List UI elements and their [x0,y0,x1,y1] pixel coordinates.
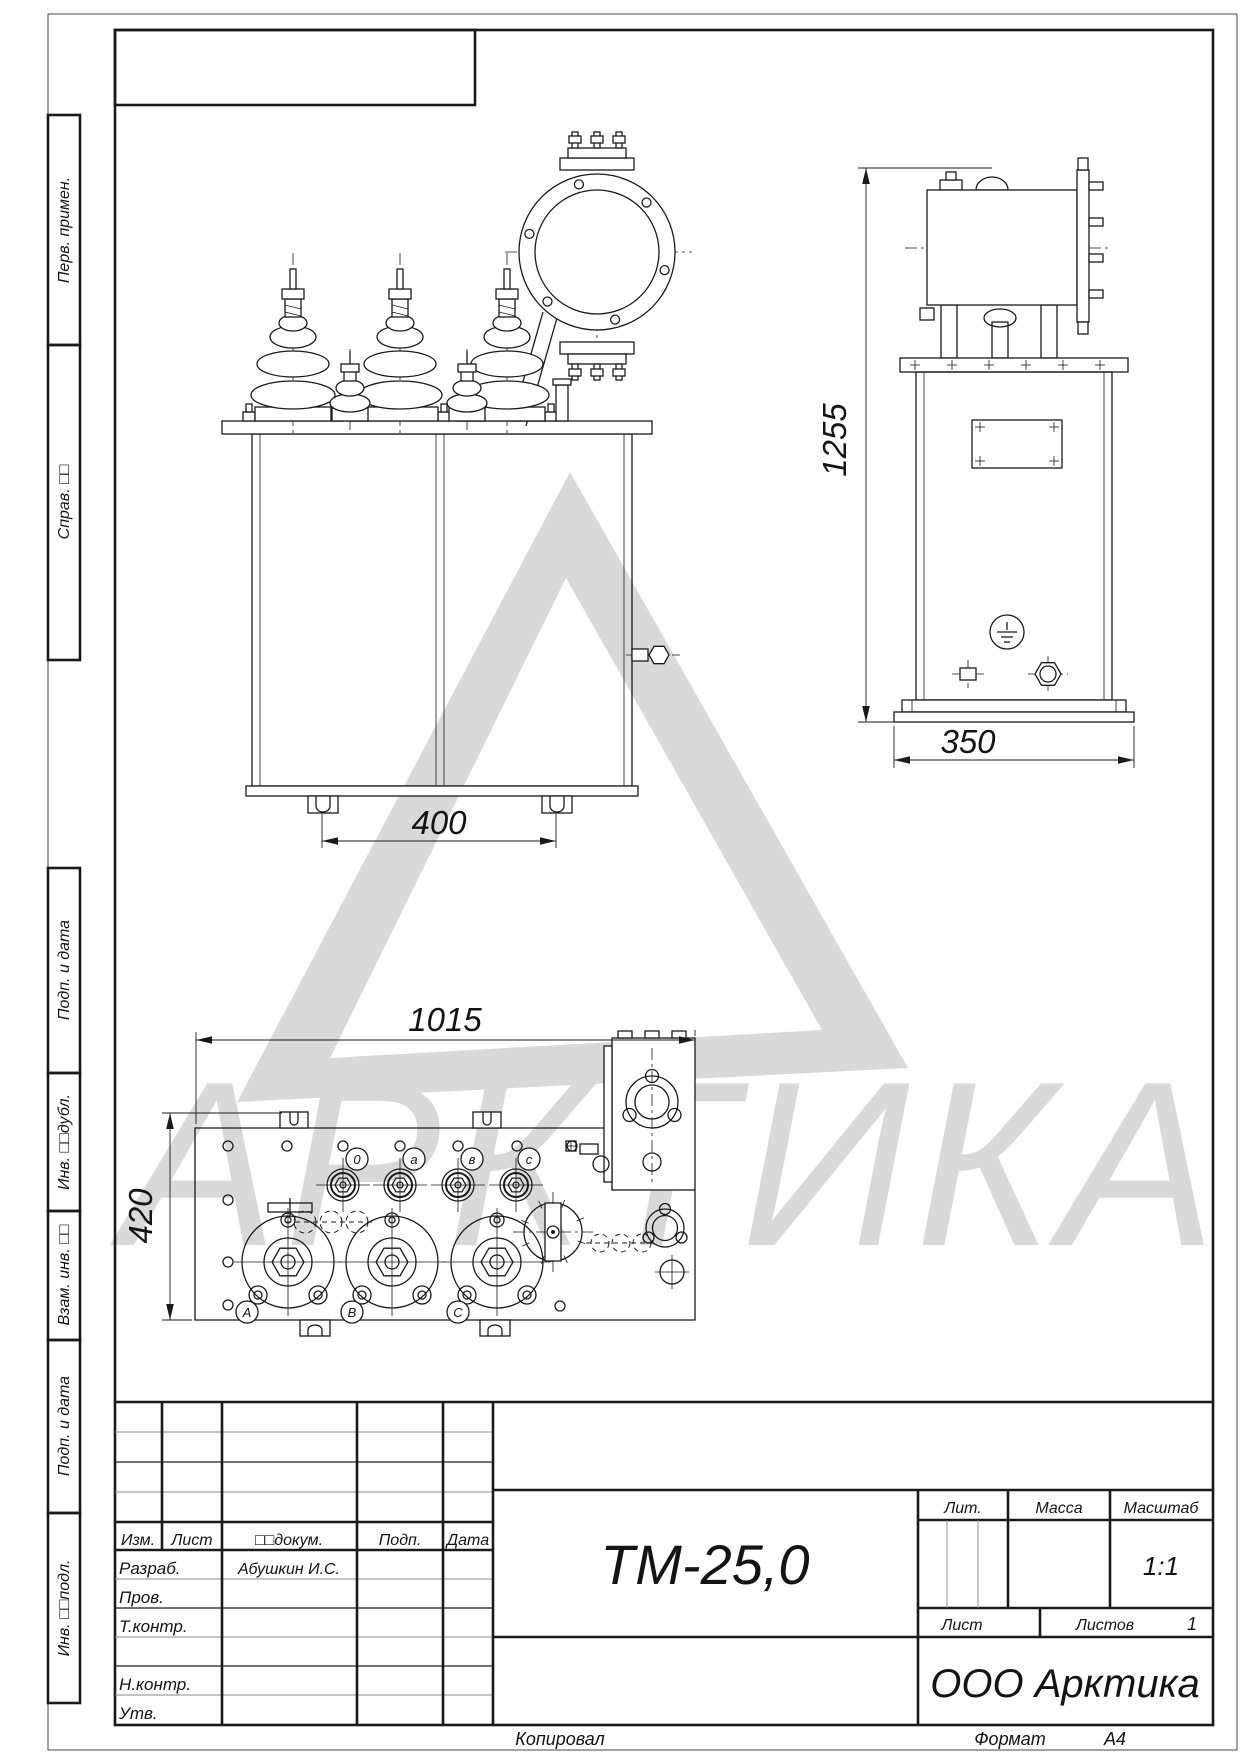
row-razrab-label: Разраб. [119,1559,181,1578]
margin-stamps: Перв. примен. Справ. □□ Подп. и дата Инв… [48,115,80,1703]
format-value: А4 [1103,1729,1126,1749]
stamp-label: Справ. □□ [56,464,73,539]
row-utv-label: Утв. [118,1704,158,1723]
stamp-label: Перв. примен. [56,177,73,283]
dimension-text: 1255 [816,403,853,477]
stamp-label: Инв. □□дубл. [56,1094,73,1190]
conservator-top-flange [560,132,634,170]
row-razrab-name: Абушкин И.С. [237,1561,340,1578]
side-cover [900,358,1128,372]
stamp-label: Подп. и дата [56,1376,73,1476]
conservator-plan [604,1031,695,1190]
col-data: Дата [445,1532,489,1549]
conservator-side [927,158,1103,334]
hv-bushing-a [243,253,343,435]
format-label: Формат [974,1729,1045,1749]
front-base [246,786,638,796]
front-foot-right [542,796,572,813]
side-base-plate [894,712,1134,722]
lit-label: Лит. [943,1500,981,1517]
front-cover [222,421,652,434]
front-foot-left [308,796,338,813]
ground-symbol [990,615,1024,649]
dimension-side-width: 350 [894,723,1134,768]
hv-phase-label: С [453,1305,463,1320]
hv-phase-label: В [348,1305,357,1320]
col-izm: Изм. [121,1532,155,1549]
title-block: Изм. Лист □□докум. Подп. Дата Разраб. Аб… [115,1402,1213,1725]
plug-fitting [952,660,984,688]
col-podp: Подп. [379,1532,422,1549]
plan-foot-right [480,1320,510,1336]
stamp-label: Взам. инв. □□ [56,1224,73,1325]
drawing-sheet: АРКТИКА [0,0,1247,1761]
sheets-label: Листов [1075,1617,1134,1634]
sheet-label: Лист [940,1617,982,1634]
plan-foot-left [300,1320,330,1336]
footer: Копировал Формат А4 [515,1729,1126,1749]
conservator-flange [1077,170,1089,322]
col-docnum: □□докум. [255,1532,323,1549]
row-tkontr-label: Т.контр. [119,1617,188,1636]
copied-label: Копировал [515,1729,605,1749]
dimension-text: 400 [411,804,467,841]
row-nkontr-label: Н.контр. [119,1675,191,1694]
conservator-front [505,132,692,380]
sheets-value: 1 [1187,1614,1197,1634]
plan-lug-left [280,1112,308,1128]
company-name: ООО Арктика [930,1662,1199,1706]
row-prov-label: Пров. [119,1588,164,1607]
stamp-label: Подп. и дата [56,920,73,1020]
mass-label: Масса [1035,1500,1082,1517]
hv-phase-label: А [242,1305,252,1320]
top-left-box [115,30,475,105]
side-view [894,158,1134,722]
rating-plate [972,420,1062,468]
dimension-text: 420 [122,1188,159,1244]
designation: ТМ-25,0 [600,1533,809,1596]
conservator-bottom-flange [560,342,634,380]
lv-terminal-label: а [410,1152,417,1167]
side-base [902,700,1126,712]
dimension-text: 1015 [408,1001,482,1038]
plan-lug-right [473,1112,501,1128]
side-tank [916,372,1112,700]
hex-valve [1028,656,1068,692]
lv-terminal-label: в [469,1152,476,1167]
stamp-label: Инв. □□подл. [56,1560,73,1657]
lv-terminal-label: 0 [353,1152,361,1167]
scale-value: 1:1 [1143,1551,1179,1581]
lv-terminal-label: с [526,1152,533,1167]
col-list: Лист [170,1532,212,1549]
scale-label: Масштаб [1124,1500,1200,1517]
thermometer-pocket [553,379,571,421]
drawing-canvas: АРКТИКА [0,0,1247,1761]
dimension-text: 350 [940,723,996,760]
